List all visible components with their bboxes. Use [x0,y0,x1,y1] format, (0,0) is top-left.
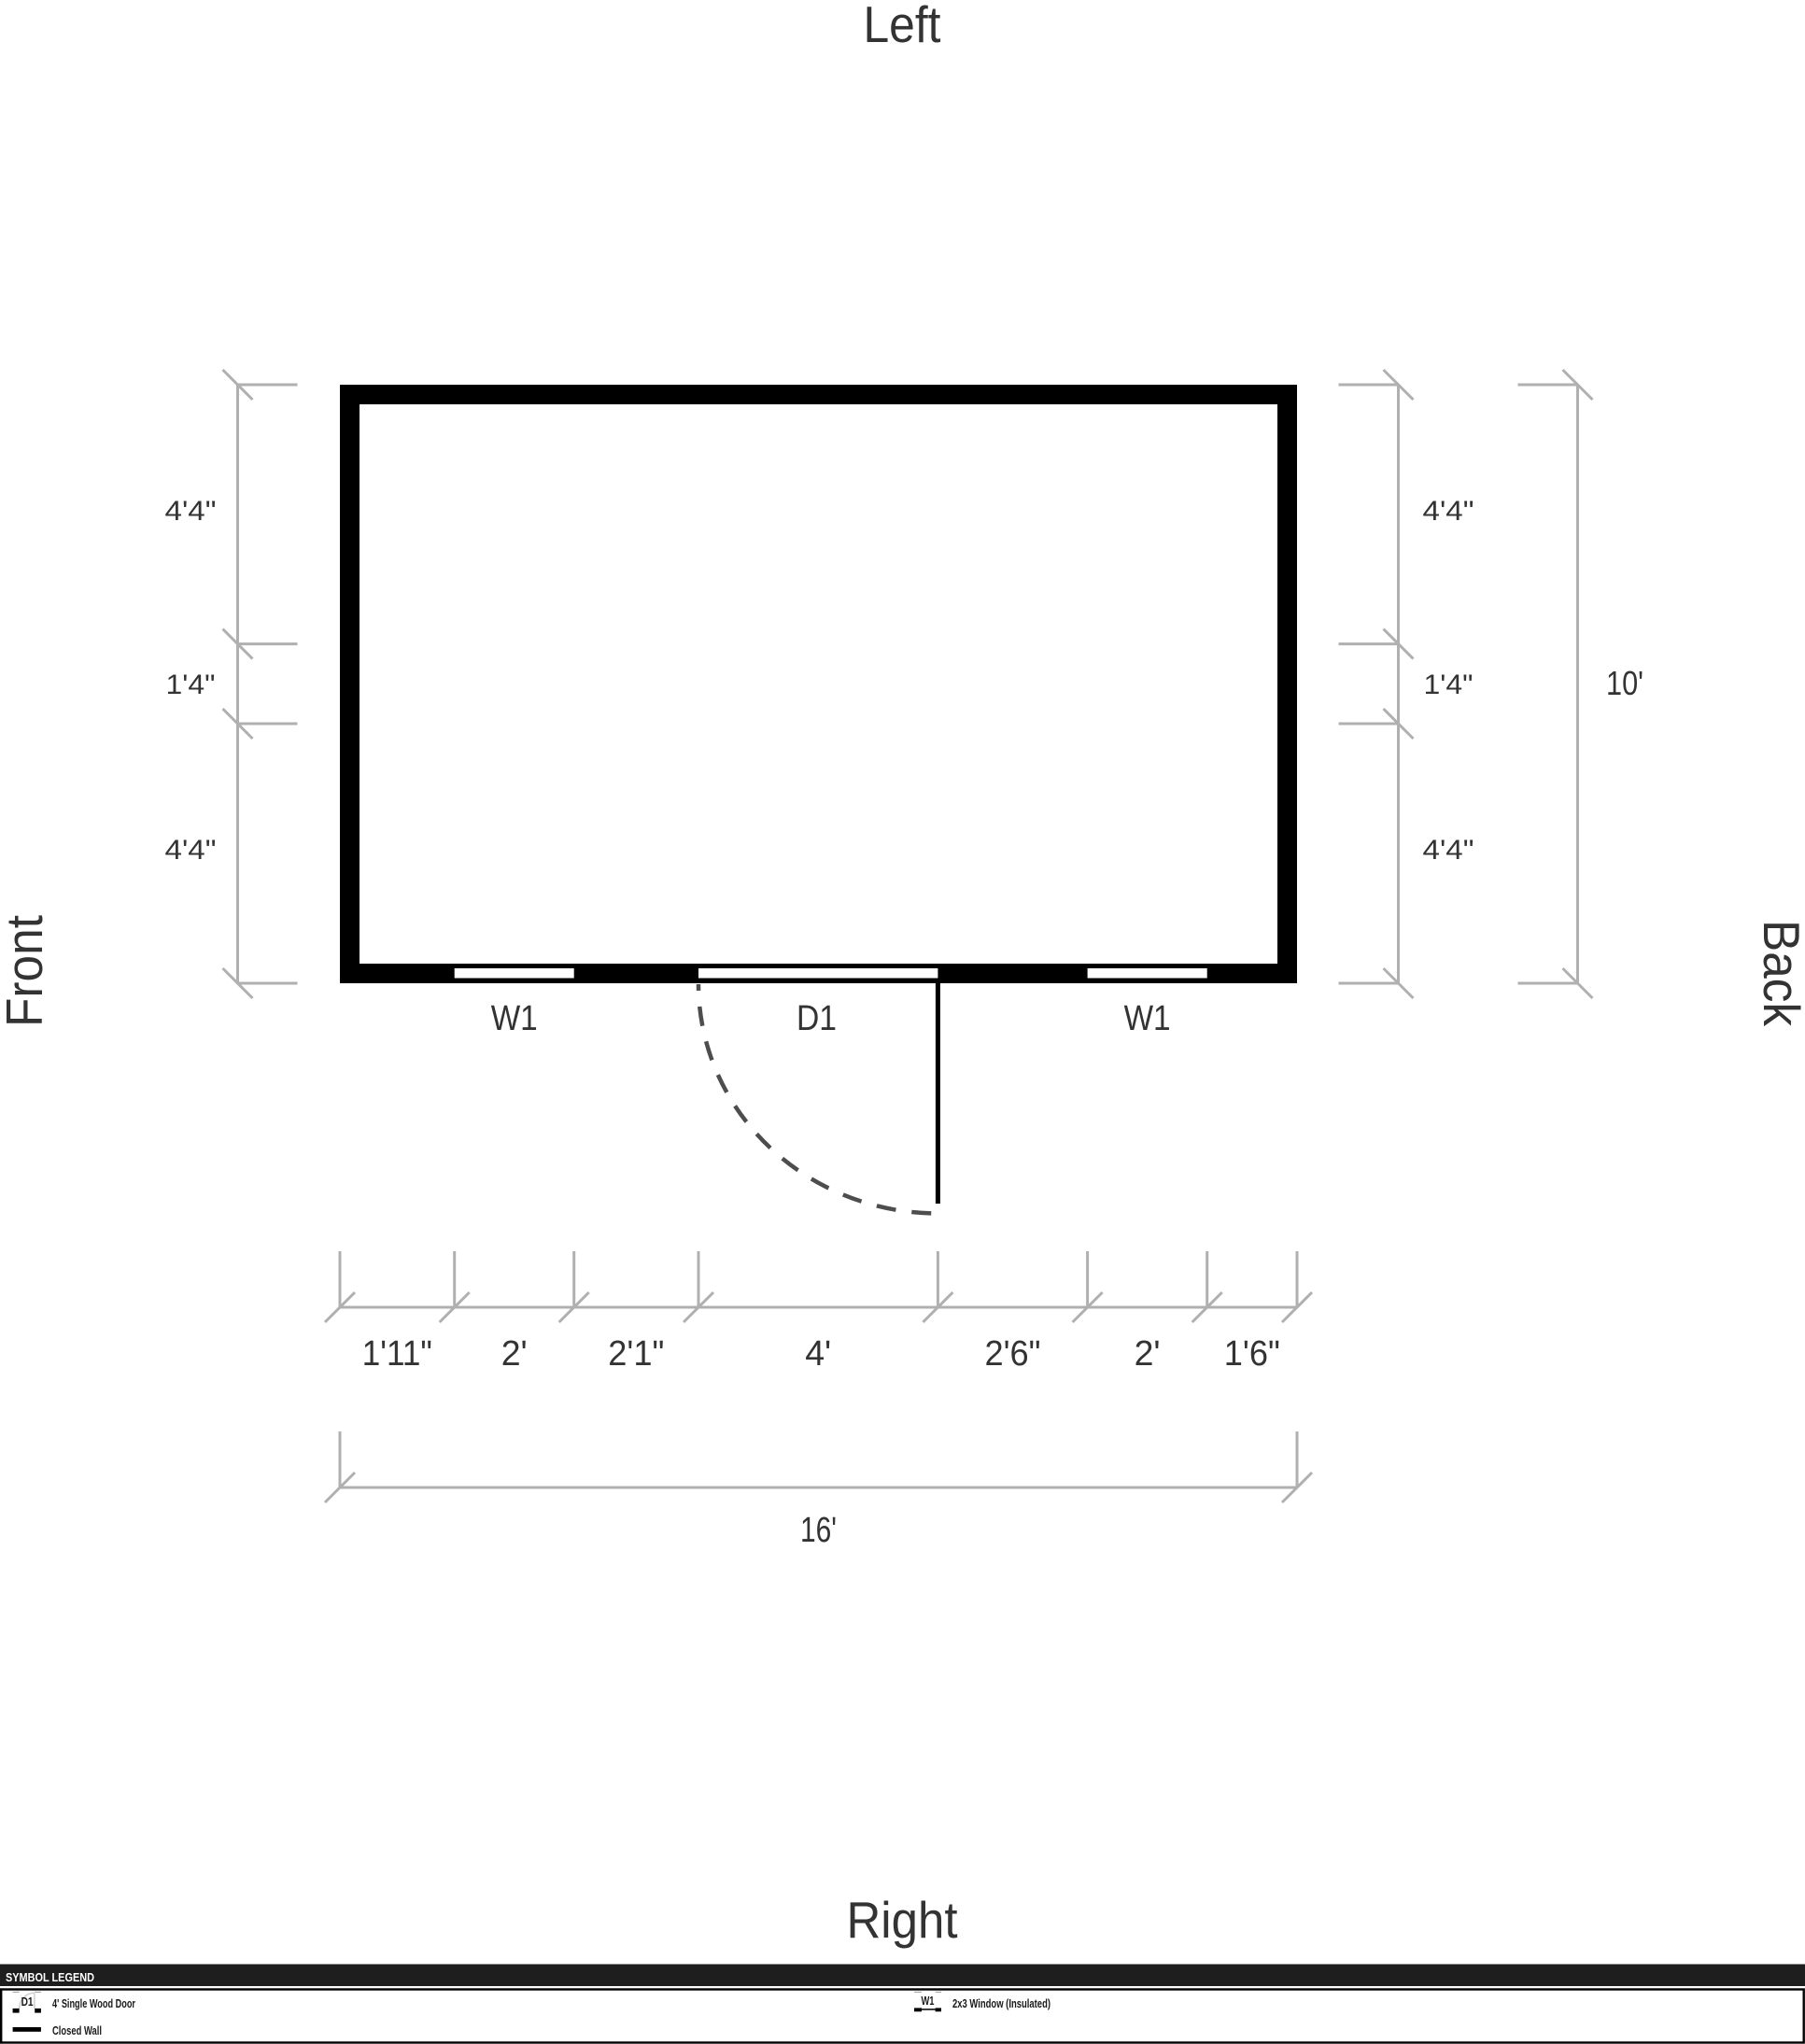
svg-text:4'4": 4'4" [165,835,217,866]
svg-text:4': 4' [805,1334,831,1374]
svg-text:Right: Right [847,1891,958,1949]
svg-text:Back: Back [1753,920,1805,1026]
svg-text:1'11": 1'11" [362,1334,432,1374]
svg-text:1'6": 1'6" [1224,1334,1280,1374]
svg-text:4'4": 4'4" [1423,835,1474,866]
svg-text:D1: D1 [797,999,837,1038]
svg-text:4'4": 4'4" [165,496,217,527]
svg-text:W1: W1 [922,1995,935,2008]
svg-text:4'4": 4'4" [1423,496,1474,527]
svg-text:1'4": 1'4" [166,670,216,700]
svg-text:2'6": 2'6" [985,1334,1041,1374]
svg-text:2x3 Window (Insulated): 2x3 Window (Insulated) [952,1996,1051,2010]
svg-text:2'1": 2'1" [608,1334,664,1374]
svg-text:Left: Left [864,0,941,53]
svg-text:W1: W1 [1124,999,1171,1038]
svg-text:1'4": 1'4" [1424,670,1474,700]
svg-text:10': 10' [1606,664,1643,702]
svg-text:2': 2' [1135,1334,1161,1374]
svg-text:D1: D1 [21,1995,34,2009]
svg-text:16': 16' [800,1511,837,1550]
svg-text:Closed Wall: Closed Wall [52,2023,102,2037]
svg-text:SYMBOL LEGEND: SYMBOL LEGEND [6,1970,94,1984]
svg-text:Front: Front [0,915,53,1027]
svg-text:2': 2' [501,1334,528,1374]
svg-text:4' Single Wood Door: 4' Single Wood Door [52,1996,135,2010]
svg-text:W1: W1 [491,999,538,1038]
